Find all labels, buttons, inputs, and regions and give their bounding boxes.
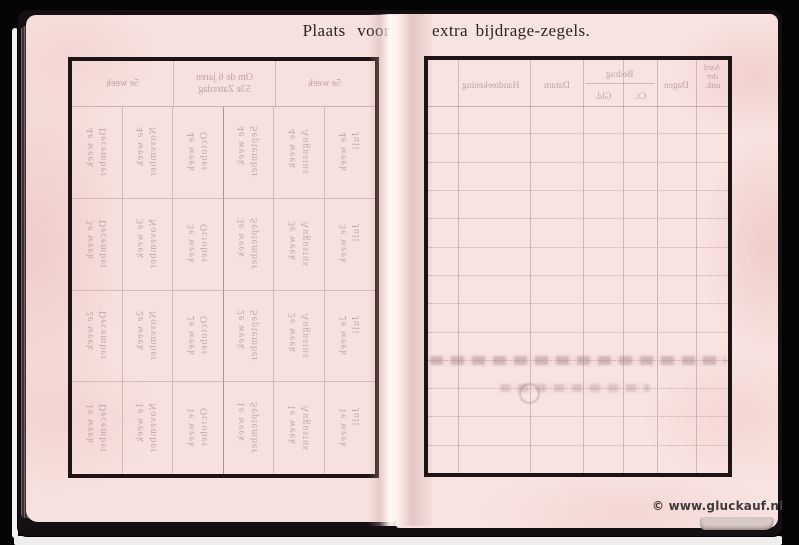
bleed-cell: 4e week December [72, 107, 123, 199]
bleed-cell-text: 1e week Juli [337, 408, 363, 448]
bleed-text: 5e week [308, 78, 341, 90]
bleed-circle-mark [519, 383, 540, 404]
bleed-cell-text: 2e week Juli [337, 316, 363, 356]
column-handteekening: Handteekening [448, 75, 534, 93]
bleed-cell: 4e week October [173, 107, 224, 199]
bleed-cell-text: 2e week September [235, 310, 261, 362]
bleed-cell-text: 4e week Juli [337, 132, 363, 172]
right-table-grid: Handteekening Datum Bedrag Gld. Ct. Dage… [428, 60, 728, 473]
bleed-cell-text: 4e week November [134, 127, 160, 177]
bleed-cell-text: 3e week December [84, 220, 110, 269]
right-table-header: Handteekening Datum Bedrag Gld. Ct. Dage… [428, 60, 728, 107]
column-ct: Ct. [625, 86, 657, 104]
bedrag-subdivider [585, 83, 655, 84]
bleed-cell-text: 3e week September [235, 218, 261, 270]
bleed-cell-text: 4e week September [235, 126, 261, 178]
right-extra-stamps-table: Handteekening Datum Bedrag Gld. Ct. Dage… [424, 56, 732, 477]
left-bleed-body: 4e week December4e week November4e week … [72, 107, 375, 474]
bleed-cell-text: 4e week December [84, 128, 110, 177]
bleed-cell: 4e week Augustus [274, 107, 325, 199]
bleed-cell-text: 3e week November [134, 219, 160, 269]
ruled-row [428, 417, 728, 445]
bleed-cell: 2e week October [173, 291, 224, 383]
bleed-cell: 2e week December [72, 291, 123, 383]
column-aard-der-uitk: Aard der uitk. [696, 63, 728, 93]
column-datum: Datum [530, 75, 583, 93]
bleed-cell-text: 2e week November [134, 311, 160, 361]
bleed-cell: 3e week November [123, 199, 174, 291]
left-stamp-table: 5e week Om de 6 jaren 53e Zaterdag 5e we… [68, 57, 379, 478]
column-dagen: Dagen [657, 75, 696, 93]
bleed-cell: 1e week October [173, 382, 224, 474]
bleed-text: Datum [544, 81, 570, 91]
bleed-cell-text: 2e week Augustus [286, 313, 312, 359]
bleed-cell-text: 1e week Augustus [286, 405, 312, 451]
bleed-cell: 4e week September [224, 107, 275, 199]
bleed-cell: 1e week November [123, 382, 174, 474]
ruled-row [428, 276, 728, 304]
header-cell-5e-week-left: 5e week [72, 61, 173, 106]
bleed-cell-text: 2e week December [84, 311, 110, 360]
bleed-cell-text: 1e week October [185, 408, 211, 448]
ruled-row [428, 248, 728, 276]
bleed-cell-text: 1e week December [84, 404, 110, 453]
bleed-cell: 3e week Juli [325, 199, 376, 291]
column-gld: Gld. [583, 86, 623, 104]
ruled-row [428, 191, 728, 219]
header-cell-5e-week-right: 5e week [274, 61, 375, 106]
ruled-row [428, 304, 728, 332]
bleed-text: Gld. [595, 92, 612, 102]
bleed-cell-text: 3e week October [185, 224, 211, 264]
bleed-cell-text: 1e week November [134, 403, 160, 453]
bleed-cell-text: 2e week October [185, 316, 211, 356]
ruled-row [428, 134, 728, 162]
bleed-text: Ct. [635, 92, 646, 102]
header-cell-53e-zaterdag: Om de 6 jaren 53e Zaterdag [173, 61, 276, 106]
scan-edge-bottom [14, 536, 782, 545]
bleed-cell-text: 3e week Augustus [286, 221, 312, 267]
illegible-bleed-line [430, 356, 726, 365]
bleed-cell: 4e week November [123, 107, 174, 199]
ruled-row [428, 106, 728, 134]
watermark-credit: © www.gluckauf.nl [652, 499, 783, 513]
page-corner-curl [700, 517, 774, 530]
bleed-cell-text: 4e week Augustus [286, 129, 312, 175]
scanned-booklet-photo: { "titles": { "left": "Plaats voor", "ri… [0, 0, 799, 545]
bleed-cell-text: 3e week Juli [337, 224, 363, 264]
bleed-cell: 3e week December [72, 199, 123, 291]
bleed-text: 5e week [106, 78, 139, 90]
bleed-text: Om de 6 jaren 53e Zaterdag [196, 72, 253, 96]
bleed-cell: 2e week November [123, 291, 174, 383]
page-title-right: extra bijdrage-zegels. [432, 21, 590, 41]
bleed-cell: 1e week December [72, 382, 123, 474]
bleed-cell: 3e week Augustus [274, 199, 325, 291]
bleed-text: Aard der uitk. [704, 63, 721, 90]
bleed-cell: 1e week September [224, 382, 275, 474]
bleed-cell: 2e week September [224, 291, 275, 383]
right-bleed-rows [428, 106, 728, 473]
bleed-cell-text: 1e week September [235, 402, 261, 454]
bleed-cell: 2e week Augustus [274, 291, 325, 383]
ruled-row [428, 446, 728, 473]
column-bedrag: Bedrag [583, 64, 657, 82]
ruled-row [428, 389, 728, 417]
bleed-cell-text: 4e week October [185, 132, 211, 172]
bleed-cell: 3e week October [173, 199, 224, 291]
bleed-cell: 1e week Augustus [274, 382, 325, 474]
bleed-cell: 3e week September [224, 199, 275, 291]
bleed-text: Handteekening [462, 81, 520, 91]
bleed-cell: 4e week Juli [325, 107, 376, 199]
ruled-row [428, 163, 728, 191]
ruled-row [428, 219, 728, 247]
bleed-text: Dagen [664, 81, 689, 91]
bleed-text: Bedrag [606, 70, 633, 80]
left-table-header: 5e week Om de 6 jaren 53e Zaterdag 5e we… [72, 61, 375, 107]
bleed-cell: 2e week Juli [325, 291, 376, 383]
page-title-left: Plaats voor [290, 21, 390, 41]
bleed-cell: 1e week Juli [325, 382, 376, 474]
